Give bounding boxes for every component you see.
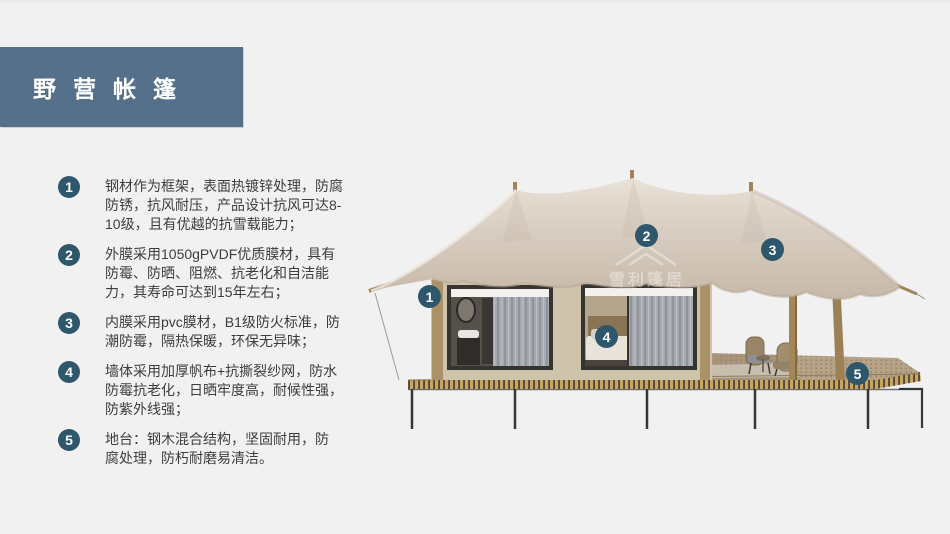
feature-number-badge: 5 [58,429,80,451]
watermark-text: 雪利篷居 [609,270,685,289]
feature-text: 钢材作为框架，表面热镀锌处理，防腐 防锈，抗风耐压，产品设计抗风可达8- 10级… [105,177,343,234]
tent-illustration: 雪利篷居 [368,158,950,448]
mirror [457,298,475,322]
feature-item-1: 1 钢材作为框架，表面热镀锌处理，防腐 防锈，抗风耐压，产品设计抗风可达8- 1… [58,177,393,234]
callout-badge-3: 3 [761,238,784,261]
cabin-corner-post [700,280,710,380]
feature-item-3: 3 内膜采用pvc膜材，B1级防火标准，防 潮防霉，隔热保暖，环保无异味； [58,313,393,351]
callout-badge-5: 5 [846,362,869,385]
shelf [482,298,493,364]
feature-item-5: 5 地台：钢木混合结构，坚固耐用，防 腐处理，防朽耐磨易清洁。 [58,430,393,468]
platform-legs [408,389,922,429]
feature-text: 墙体采用加厚帆布+抗撕裂纱网，防水 防霉抗老化，日晒牢度高，耐候性强， 防紫外线… [105,362,343,419]
slide: 野营帐篷 1 钢材作为框架，表面热镀锌处理，防腐 防锈，抗风耐压，产品设计抗风可… [0,0,950,534]
window-valance [585,288,693,296]
curtain [628,296,693,366]
page-title: 野营帐篷 [0,70,193,104]
window-bathroom [447,285,553,370]
callout-badge-1: 1 [418,285,441,308]
feature-number-badge: 1 [58,176,80,198]
callout-badge-2: 2 [635,224,658,247]
curtain [493,297,549,366]
callout-badge-4: 4 [595,325,618,348]
feature-text: 地台：钢木混合结构，坚固耐用，防 腐处理，防朽耐磨易清洁。 [105,430,329,468]
feature-text: 内膜采用pvc膜材，B1级防火标准，防 潮防霉，隔热保暖，环保无异味； [105,313,340,351]
feature-text: 外膜采用1050gPVDF优质膜材，具有 防霉、防晒、阻燃、抗老化和自洁能 力，… [105,245,335,302]
window-valance [451,289,549,297]
feature-item-4: 4 墙体采用加厚帆布+抗撕裂纱网，防水 防霉抗老化，日晒牢度高，耐候性强， 防紫… [58,362,393,419]
sink [458,330,479,338]
feature-number-badge: 3 [58,312,80,334]
title-banner: 野营帐篷 [0,47,243,127]
feature-number-badge: 4 [58,361,80,383]
vanity-cabinet [457,338,480,365]
feature-list: 1 钢材作为框架，表面热镀锌处理，防腐 防锈，抗风耐压，产品设计抗风可达8- 1… [58,177,393,479]
feature-item-2: 2 外膜采用1050gPVDF优质膜材，具有 防霉、防晒、阻燃、抗老化和自洁能 … [58,245,393,302]
feature-number-badge: 2 [58,244,80,266]
